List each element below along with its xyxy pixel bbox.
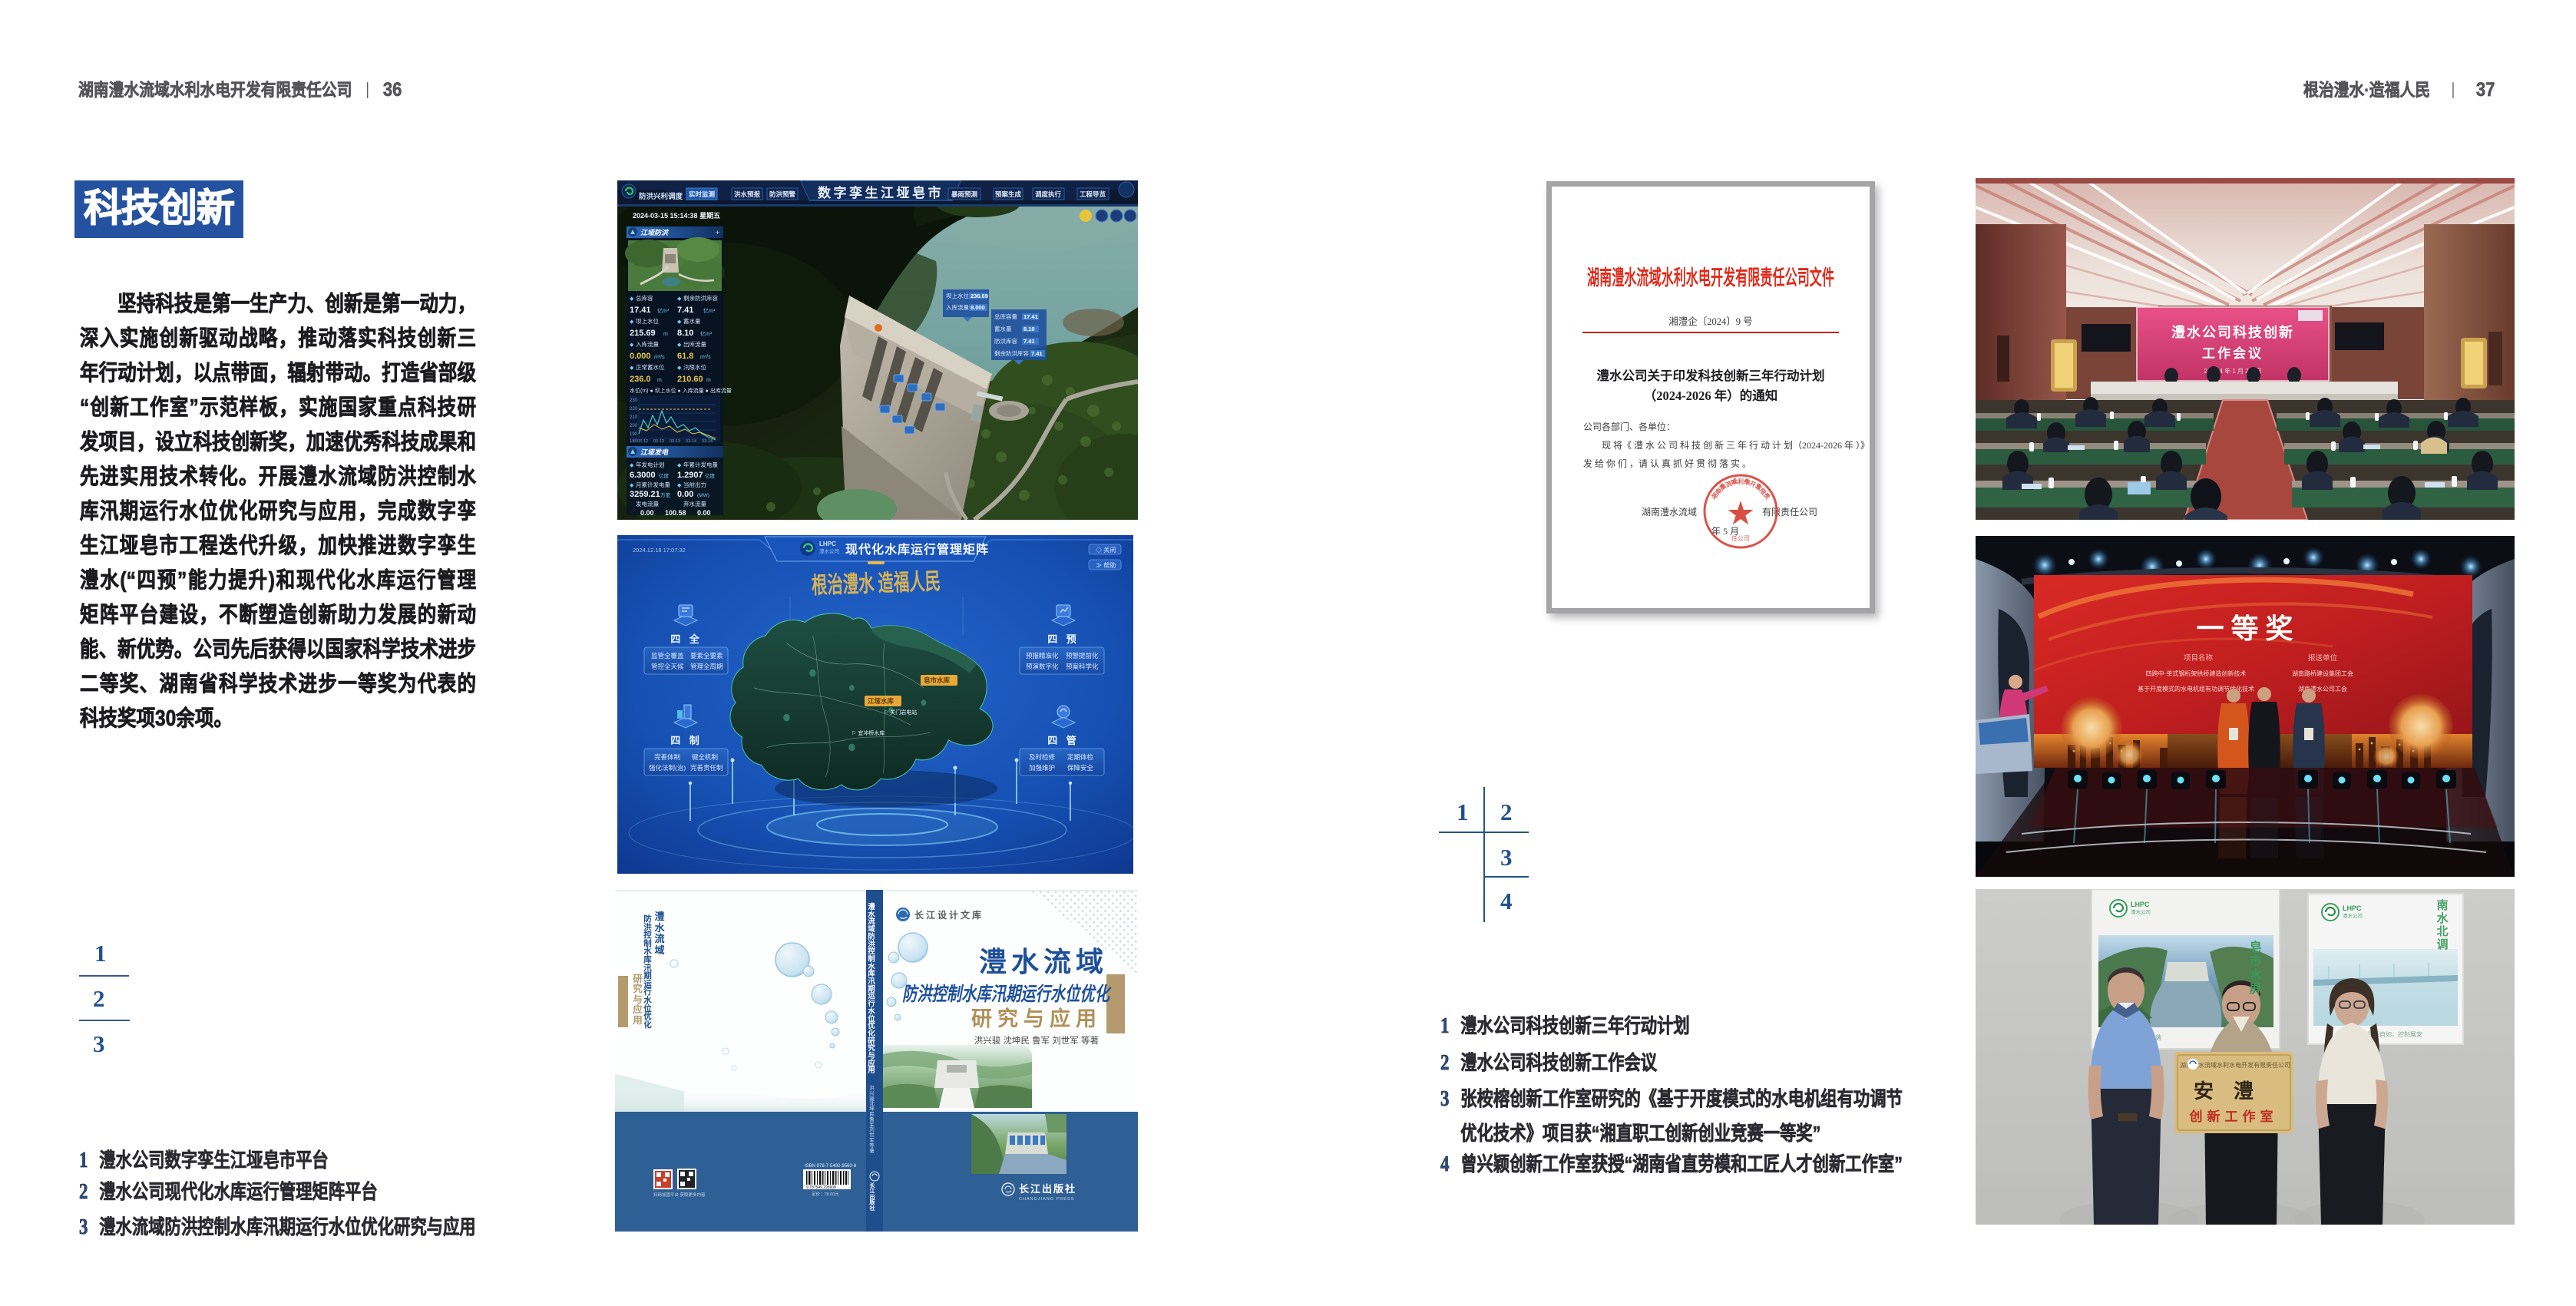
svg-text:管理全周期: 管理全周期 [690, 663, 723, 670]
svg-text:亿m³: 亿m³ [657, 307, 670, 314]
svg-text:实时监测: 实时监测 [689, 190, 716, 198]
svg-text:亿度: 亿度 [705, 472, 716, 479]
svg-text:◆: ◆ [630, 296, 634, 302]
svg-text:1.2907: 1.2907 [677, 471, 703, 480]
svg-text:项目名称: 项目名称 [2184, 653, 2214, 663]
svg-text:洪水预报: 洪水预报 [734, 190, 761, 198]
svg-text:湖南路桥建设集团工会: 湖南路桥建设集团工会 [2292, 670, 2353, 677]
svg-text:◆: ◆ [677, 296, 682, 302]
svg-text:管控全天候: 管控全天候 [651, 663, 684, 670]
svg-text:3259.21: 3259.21 [630, 490, 660, 499]
svg-text:9 787549 295608: 9 787549 295608 [806, 1185, 836, 1190]
svg-text:强化法制(治): 强化法制(治) [649, 764, 686, 772]
svg-text:6.3000: 6.3000 [630, 471, 656, 480]
svg-text:61.8: 61.8 [677, 352, 693, 361]
svg-text:◆: ◆ [630, 483, 634, 488]
svg-text:工作会议: 工作会议 [2202, 346, 2264, 361]
svg-text:0.000: 0.000 [630, 352, 651, 361]
svg-text:7.41: 7.41 [1023, 338, 1035, 345]
svg-text:预案生成: 预案生成 [995, 190, 1022, 198]
svg-text:四 全: 四 全 [670, 633, 703, 645]
svg-text:215.69: 215.69 [630, 329, 656, 338]
svg-text:一等奖: 一等奖 [2196, 613, 2300, 644]
svg-text:8.000: 8.000 [971, 304, 985, 311]
svg-text:◆: ◆ [630, 365, 634, 371]
svg-text:≫ 帮助: ≫ 帮助 [1096, 561, 1116, 569]
svg-text:ISBN 978-7-5492-9560-8: ISBN 978-7-5492-9560-8 [805, 1164, 857, 1169]
svg-text:亿度: 亿度 [659, 472, 670, 479]
svg-text:正常蓄水位: 正常蓄水位 [636, 363, 665, 371]
svg-text:7.41: 7.41 [1031, 350, 1043, 357]
svg-text:蓄水量: 蓄水量 [683, 317, 701, 325]
svg-text:研究与应用: 研究与应用 [971, 1007, 1102, 1030]
svg-text:发电流量: 发电流量 [636, 500, 659, 508]
svg-text:健全机制: 健全机制 [692, 753, 718, 761]
svg-text:⚐ 宜冲桥水库: ⚐ 宜冲桥水库 [852, 729, 885, 736]
svg-text:暴雨预测: 暴雨预测 [951, 190, 978, 198]
svg-text:定价：78.00元: 定价：78.00元 [812, 1191, 839, 1197]
svg-text:长江设计文库: 长江设计文库 [914, 909, 984, 921]
svg-text:江垭防洪: 江垭防洪 [640, 229, 670, 236]
svg-text:预案科学化: 预案科学化 [1066, 663, 1099, 670]
svg-text:根治澧水 造福人民: 根治澧水 造福人民 [812, 569, 941, 599]
svg-text:◆: ◆ [677, 483, 682, 488]
svg-text:230: 230 [630, 398, 638, 403]
svg-text:当前出力: 当前出力 [683, 481, 706, 488]
svg-text:月累计发电量: 月累计发电量 [636, 481, 670, 488]
svg-text:◆: ◆ [677, 365, 682, 371]
svg-text:03-13: 03-13 [670, 439, 680, 444]
svg-text:03-14: 03-14 [702, 439, 713, 444]
svg-text:四 预: 四 预 [1047, 633, 1080, 645]
svg-text:210.60: 210.60 [677, 375, 703, 384]
svg-text:220: 220 [630, 407, 638, 412]
svg-text:澧水公司关于印发科技创新三年行动计划: 澧水公司关于印发科技创新三年行动计划 [1597, 368, 1825, 383]
svg-text:总库容量: 总库容量 [994, 312, 1017, 320]
svg-text:8.10: 8.10 [677, 329, 693, 338]
svg-text:蓄水量: 蓄水量 [994, 325, 1012, 332]
svg-text:剩余防洪库容: 剩余防洪库容 [994, 349, 1029, 357]
svg-text:0.00: 0.00 [677, 490, 693, 499]
svg-text:◇ 关闭: ◇ 关闭 [1096, 546, 1116, 554]
svg-text:236.69: 236.69 [971, 293, 988, 299]
svg-text:7.41: 7.41 [677, 306, 693, 315]
svg-text:03-13: 03-13 [653, 439, 664, 444]
svg-text:水位(m) ● 坝上水位 ● 入库流量 ● 出库流量: 水位(m) ● 坝上水位 ● 入库流量 ● 出库流量 [630, 387, 732, 394]
svg-text:有限责任公司: 有限责任公司 [1762, 507, 1817, 517]
svg-text:预演数字化: 预演数字化 [1026, 663, 1059, 670]
svg-text:江垭发电: 江垭发电 [640, 448, 669, 456]
svg-text:四 制: 四 制 [670, 735, 703, 746]
svg-text:m: m [657, 378, 662, 383]
svg-text:现代化水库运行管理矩阵: 现代化水库运行管理矩阵 [845, 542, 989, 557]
svg-text:四跨中·单式钢桁架拱桥建造创新技术: 四跨中·单式钢桁架拱桥建造创新技术 [2146, 670, 2247, 677]
svg-text:加强维护: 加强维护 [1029, 764, 1055, 772]
svg-text:2024-03-15 15:14:38 星期五: 2024-03-15 15:14:38 星期五 [633, 211, 720, 220]
svg-text:◆: ◆ [630, 319, 634, 325]
svg-text:防洪兴利调度: 防洪兴利调度 [639, 192, 683, 201]
svg-text:100.58: 100.58 [665, 509, 686, 517]
svg-text:长江出版社: 长江出版社 [1019, 1183, 1076, 1195]
svg-text:LHPC: LHPC [819, 541, 836, 547]
svg-text:入库流量: 入库流量 [946, 303, 969, 311]
svg-text:调度执行: 调度执行 [1035, 190, 1062, 198]
svg-text:江垭水库: 江垭水库 [868, 697, 894, 705]
svg-text:扫码加固平台 获取更多内容: 扫码加固平台 获取更多内容 [653, 1192, 706, 1198]
svg-text:创新工作室: 创新工作室 [2189, 1109, 2278, 1124]
svg-text:工程导览: 工程导览 [1080, 190, 1106, 198]
svg-text:m: m [706, 378, 711, 383]
svg-text:03-14: 03-14 [686, 439, 696, 444]
svg-text:◆: ◆ [630, 463, 634, 468]
svg-text:入库流量: 入库流量 [636, 340, 659, 348]
svg-text:防洪库容: 防洪库容 [994, 337, 1017, 345]
svg-text:亿m³: 亿m³ [703, 307, 716, 314]
svg-text:◆: ◆ [677, 319, 682, 325]
svg-text:万度: 万度 [660, 491, 671, 498]
svg-text:坝上水位: 坝上水位 [946, 292, 969, 299]
svg-text:(MW): (MW) [697, 493, 709, 498]
svg-text:⚐ 关门岩电站: ⚐ 关门岩电站 [884, 709, 917, 716]
svg-text:湖南澧水流域水利水电开发有限责任公司文件: 湖南澧水流域水利水电开发有限责任公司文件 [1587, 266, 1834, 289]
svg-text:弃水流量: 弃水流量 [683, 500, 706, 508]
svg-text:亿m³: 亿m³ [700, 330, 713, 337]
svg-text:完善责任制: 完善责任制 [690, 764, 723, 772]
svg-text:◆: ◆ [677, 463, 682, 468]
svg-text:出库流量: 出库流量 [683, 340, 706, 348]
svg-text:定期体检: 定期体检 [1067, 753, 1094, 761]
svg-text:预报精准化: 预报精准化 [1026, 652, 1059, 660]
svg-text:LHPC: LHPC [2131, 901, 2150, 908]
svg-text:m³/s: m³/s [700, 355, 711, 360]
svg-text:发 给 你 们 ，请 认 真 抓 好 贯 彻 落 实 。: 发 给 你 们 ，请 认 真 抓 好 贯 彻 落 实 。 [1583, 458, 1751, 469]
svg-text:预警提前化: 预警提前化 [1066, 652, 1099, 660]
svg-text:澧水公司科技创新: 澧水公司科技创新 [2171, 324, 2294, 340]
svg-text:200: 200 [630, 424, 638, 428]
svg-text:监管全覆盖: 监管全覆盖 [651, 652, 684, 660]
svg-text:坝上水位: 坝上水位 [636, 317, 659, 325]
svg-text:年发电计划: 年发电计划 [636, 461, 665, 468]
svg-text:+: + [716, 229, 719, 236]
svg-text:皂市水库: 皂市水库 [924, 676, 951, 684]
svg-text:公司各部门、各单位：: 公司各部门、各单位： [1583, 421, 1675, 432]
svg-text:澧水流域: 澧水流域 [979, 946, 1108, 977]
svg-text:CHANGJIANG PRESS: CHANGJIANG PRESS [1019, 1197, 1074, 1202]
svg-text:剩余防洪库容: 剩余防洪库容 [683, 294, 718, 302]
svg-text:LHPC: LHPC [2343, 904, 2362, 912]
svg-text:汛限水位: 汛限水位 [683, 363, 706, 371]
svg-text:（2024-2026 年）的通知: （2024-2026 年）的通知 [1644, 388, 1778, 403]
svg-text:澧水公司: 澧水公司 [2131, 908, 2151, 915]
svg-text:报送单位: 报送单位 [2308, 653, 2338, 663]
svg-text:◆: ◆ [677, 342, 682, 348]
svg-text:总库容: 总库容 [636, 294, 653, 302]
svg-text:17.41: 17.41 [1023, 313, 1038, 320]
svg-text:澧水公司: 澧水公司 [819, 547, 839, 554]
svg-text:0.00: 0.00 [697, 509, 711, 517]
svg-text:安澧: 安澧 [2194, 1080, 2273, 1103]
svg-text:数字孪生江垭皂市: 数字孪生江垭皂市 [818, 185, 944, 200]
svg-text:210: 210 [630, 415, 638, 420]
svg-text:2024.12.18 17:07:32: 2024.12.18 17:07:32 [633, 547, 686, 554]
svg-text:m³/s: m³/s [654, 355, 665, 360]
svg-text:◆: ◆ [630, 342, 634, 348]
svg-text:8.10: 8.10 [1023, 326, 1035, 332]
svg-text:m: m [663, 332, 668, 337]
svg-text:湘澧企〔2024〕9 号: 湘澧企〔2024〕9 号 [1668, 316, 1752, 327]
svg-text:有限责: 有限责 [1754, 482, 1771, 501]
svg-text:03-12: 03-12 [637, 439, 648, 444]
svg-text:防洪控制水库汛期运行水位优化: 防洪控制水库汛期运行水位优化 [902, 984, 1112, 1005]
svg-text:年累计发电量: 年累计发电量 [683, 461, 718, 468]
svg-text:完善体制: 完善体制 [654, 753, 680, 761]
svg-text:0.00: 0.00 [640, 509, 654, 517]
svg-text:要素全要素: 要素全要素 [690, 652, 723, 660]
svg-text:湖南澧水流域: 湖南澧水流域 [1642, 506, 1697, 517]
svg-text:保障安全: 保障安全 [1067, 764, 1094, 772]
svg-text:防洪预警: 防洪预警 [769, 190, 796, 198]
svg-text:现 将《 澧 水 公 司 科 技 创 新 三 年 行 动 计: 现 将《 澧 水 公 司 科 技 创 新 三 年 行 动 计 划（2024-20… [1602, 439, 1870, 451]
svg-text:任公司: 任公司 [1731, 534, 1750, 542]
svg-text:洪兴骏 沈坤民 鲁军 刘世军 等著: 洪兴骏 沈坤民 鲁军 刘世军 等著 [974, 1035, 1099, 1046]
svg-text:及时检修: 及时检修 [1029, 753, 1056, 761]
svg-text:澧水公司: 澧水公司 [2343, 912, 2363, 919]
svg-text:190: 190 [630, 432, 638, 437]
svg-text:四 管: 四 管 [1047, 735, 1080, 746]
svg-text:236.0: 236.0 [630, 375, 651, 384]
svg-text:17.41: 17.41 [630, 306, 651, 315]
